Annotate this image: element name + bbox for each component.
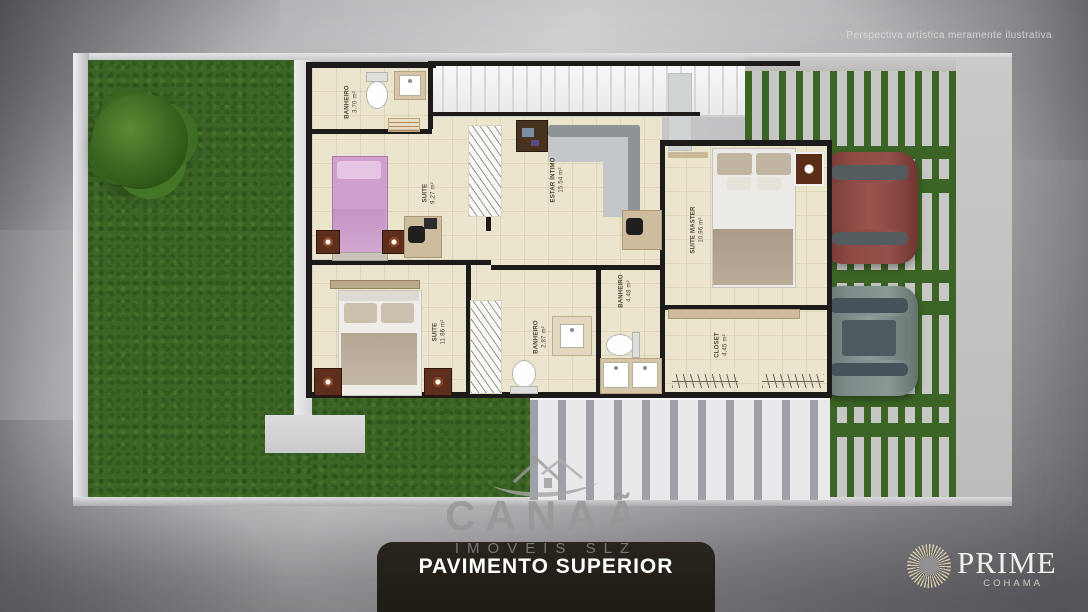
wall-left — [306, 62, 312, 398]
bed-master-pillow — [756, 153, 791, 175]
room-label-estar: ESTAR ÍNTIMO 15.54 m² — [551, 158, 566, 203]
room-label-suite2: SUITE 11.86 m² — [433, 320, 448, 345]
patio — [265, 415, 365, 453]
room-area: 2.87 m² — [541, 320, 549, 354]
tree — [92, 93, 188, 189]
shower-sink-icon — [560, 324, 584, 348]
bed-master-cushion — [727, 177, 751, 190]
door-hatch-bath1 — [388, 118, 420, 132]
car-gray-sunroof — [842, 320, 896, 356]
toilet-icon — [512, 360, 536, 388]
wall-stair-bottom — [428, 112, 700, 116]
room-label-suite-master: SUITE MASTER 10.96 m² — [691, 206, 706, 253]
sofa-back-right — [628, 125, 640, 217]
bed-master — [712, 148, 796, 288]
room-name: SUITE MASTER — [691, 206, 699, 253]
room-area: 11.86 m² — [440, 320, 448, 345]
room-label-banheiro1: BANHEIRO 3.70 m² — [345, 85, 360, 119]
speaker-box — [794, 152, 824, 186]
dresser-suite2 — [330, 280, 420, 289]
bed-suite1-bench — [332, 252, 388, 261]
shelf-master — [668, 152, 708, 158]
disclaimer-text: Perspectiva artística meramente ilustrat… — [846, 30, 1052, 41]
decor-icon — [531, 140, 539, 146]
bed-suite2-pillow — [344, 303, 377, 323]
room-name: BANHEIRO — [534, 320, 542, 354]
room-name: BANHEIRO — [345, 85, 353, 119]
stair-roof-band — [428, 63, 745, 117]
desk-chair-icon — [626, 218, 643, 235]
printer-icon — [424, 218, 437, 229]
wall-bath1-right — [428, 63, 433, 129]
wall-top-left — [306, 62, 436, 68]
room-label-banheiro3: BANHEIRO 4.48 m² — [619, 274, 634, 308]
bed-master-cushion — [757, 177, 781, 190]
sink-icon — [399, 75, 421, 96]
closet-rail — [672, 374, 738, 388]
toilet-icon — [606, 334, 634, 356]
sidewalk-right — [956, 57, 1012, 497]
room-label-banheiro2: BANHEIRO 2.87 m² — [534, 320, 549, 354]
watermark-tagline: IMÓVEIS SLZ — [396, 540, 696, 557]
sofa-seat-right — [603, 137, 628, 217]
wall-right — [827, 140, 832, 398]
bed-master-blanket — [713, 229, 793, 285]
room-area: 4.48 m² — [626, 274, 634, 308]
bed-suite1 — [332, 156, 388, 256]
wall-master-top — [660, 140, 832, 146]
closet-shelf — [668, 309, 800, 319]
room-name: BANHEIRO — [619, 274, 627, 308]
car-gray-rear-window — [830, 363, 908, 376]
car-gray — [820, 286, 918, 396]
render-canvas: Perspectiva artística meramente ilustrat… — [0, 0, 1088, 612]
room-label-closet: CLOSET 4.45 m² — [715, 332, 730, 358]
car-red — [822, 152, 918, 264]
bed-suite2-pillow — [381, 303, 414, 323]
desk-chair-icon — [408, 226, 425, 243]
car-red-roof — [832, 183, 908, 229]
floor-title: PAVIMENTO SUPERIOR — [419, 555, 674, 579]
wall-corridor — [491, 265, 665, 270]
toilet-icon — [366, 81, 388, 109]
bed-master-pillow — [717, 153, 752, 175]
bed-suite1-blanket — [333, 209, 385, 253]
room-name: ESTAR ÍNTIMO — [551, 158, 559, 203]
closet-hatch-suite2 — [470, 300, 502, 394]
prime-brand: PRIME — [957, 545, 1057, 581]
prime-sunburst-icon — [907, 544, 951, 588]
bed-suite2-headboard — [339, 291, 419, 301]
toilet-tank-icon — [632, 332, 640, 358]
wall-top-main — [428, 61, 800, 66]
room-name: SUITE — [423, 182, 431, 204]
room-area: 4.45 m² — [722, 332, 730, 358]
sink-icon — [603, 362, 629, 388]
bed-suite1-pillow — [337, 161, 381, 179]
tv-cabinet — [516, 120, 548, 152]
room-name: CLOSET — [715, 332, 723, 358]
sink-icon — [632, 362, 658, 388]
wardrobe-hatch-suite1 — [468, 125, 502, 217]
room-area: 9.27 m² — [430, 182, 438, 204]
nightstand — [424, 368, 452, 396]
sofa-back-top — [548, 125, 640, 137]
bed-suite2-blanket — [341, 333, 417, 385]
room-area: 10.96 m² — [698, 206, 706, 253]
car-red-windshield — [832, 165, 908, 180]
toilet-tank-icon — [510, 386, 538, 394]
nightstand — [382, 230, 406, 254]
car-red-rear-window — [832, 232, 908, 245]
bed-suite2 — [338, 290, 422, 396]
nightstand — [316, 230, 340, 254]
room-name: SUITE — [433, 320, 441, 345]
tv-screen-icon — [522, 128, 534, 137]
closet-rail — [762, 374, 824, 388]
prime-sub-brand: COHAMA — [957, 578, 1043, 589]
nightstand — [314, 368, 342, 396]
room-label-suite1: SUITE 9.27 m² — [423, 182, 438, 204]
site-edge-left — [73, 53, 89, 506]
watermark-brand: CANAÃ — [396, 492, 696, 540]
room-area: 3.70 m² — [352, 85, 360, 119]
room-area: 15.54 m² — [558, 158, 566, 203]
car-gray-windshield — [830, 298, 908, 313]
